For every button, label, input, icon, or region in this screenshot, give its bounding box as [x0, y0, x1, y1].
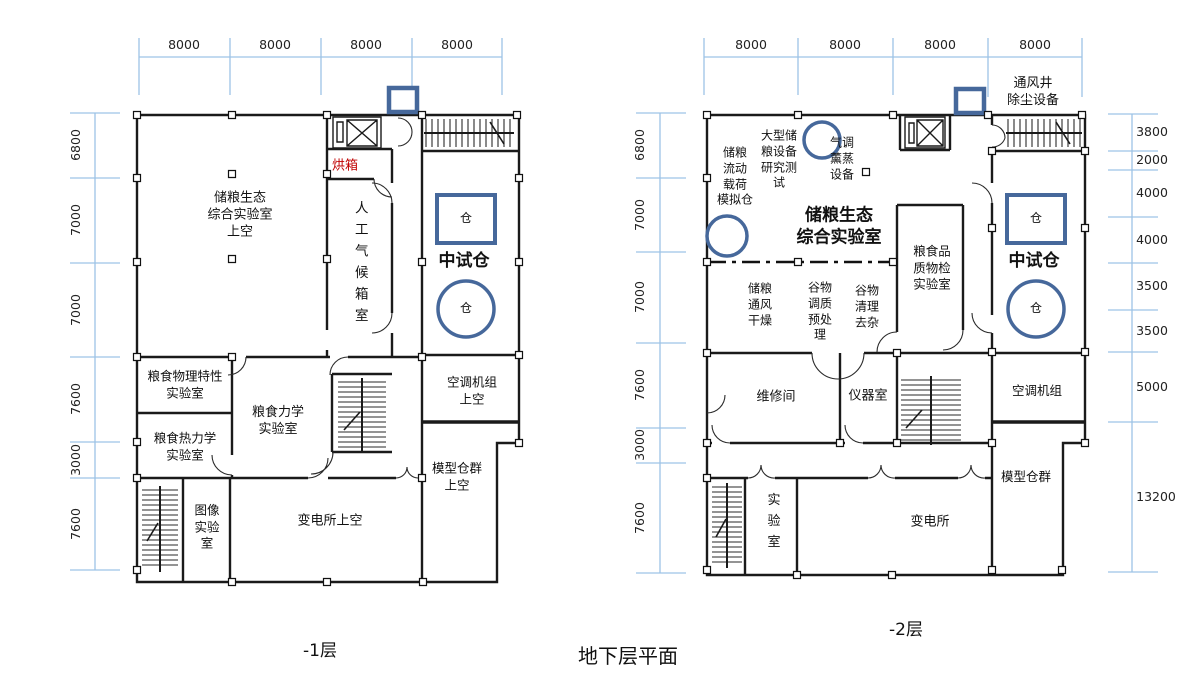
p2-top-dim-3: 8000 [1019, 37, 1051, 54]
p2-pilot-bin-label: 中试仓 [1009, 250, 1060, 272]
p1-room-eco-lab: 储粮生态 综合实验室 上空 [207, 189, 272, 240]
p2-room-quality-lab: 粮食品 质物检 实验室 [913, 243, 951, 293]
p1-left-dim-2: 7000 [68, 294, 85, 326]
p1-square-bin-label: 仓 [460, 211, 472, 227]
p2-round-bin-label: 仓 [1030, 301, 1042, 317]
p1-left-dim-4: 3000 [68, 444, 85, 476]
p2-room-drying: 储粮 通风 干燥 [748, 281, 772, 328]
p2-right-dim-4: 3500 [1136, 278, 1168, 295]
p1-room-substation: 变电所上空 [297, 512, 362, 529]
p2-room-lab: 实验室 [766, 493, 779, 556]
p1-top-dim-2: 8000 [350, 37, 382, 54]
p1-pilot-bin-label: 中试仓 [439, 250, 490, 272]
p2-top-dim-2: 8000 [924, 37, 956, 54]
p1-room-climate-chamber: 人工气候箱室 [352, 201, 366, 330]
p2-top-dim-0: 8000 [735, 37, 767, 54]
p2-left-dim-5: 7600 [632, 502, 649, 534]
p2-room-conditioning: 谷物 调质 预处 理 [808, 280, 832, 343]
basement-floor-plan-drawing: 8000 8000 8000 8000 6800 7000 7000 7600 … [0, 0, 1195, 682]
p1-top-dim-3: 8000 [441, 37, 473, 54]
p2-left-dim-4: 3000 [632, 429, 649, 461]
p1-left-dim-0: 6800 [68, 129, 85, 161]
p1-top-stairs-icon [424, 119, 514, 147]
p1-bottom-stairs-icon [142, 486, 178, 572]
p2-room-eco-lab: 储粮生态 综合实验室 [797, 205, 882, 250]
p1-elevator-icon [333, 117, 381, 148]
p1-left-dim-3: 7600 [68, 383, 85, 415]
p2-room-substation: 变电所 [910, 513, 949, 530]
p2-room-model-bins: 模型仓群 [1001, 469, 1051, 486]
p2-elevator-icon [905, 117, 945, 148]
p2-room-cleaning: 谷物 清理 去杂 [855, 283, 879, 330]
p2-room-repair: 维修间 [756, 388, 795, 405]
p2-right-dim-0: 3800 [1136, 124, 1168, 141]
p1-top-dim-1: 8000 [259, 37, 291, 54]
p1-floor-label: -1层 [303, 640, 337, 662]
p2-room-instrument: 仪器室 [848, 387, 887, 404]
drawing-title: 地下层平面 [578, 643, 678, 669]
p1-round-bin-label: 仓 [460, 301, 472, 317]
p2-top-dim-1: 8000 [829, 37, 861, 54]
p1-top-dim-0: 8000 [168, 37, 200, 54]
p1-oven-label: 烘箱 [332, 157, 358, 174]
p1-vent-shaft-square [389, 88, 417, 112]
p1-door-arcs [212, 118, 418, 478]
p2-right-dim-1: 2000 [1136, 152, 1168, 169]
p2-floor-label: -2层 [889, 619, 923, 641]
p1-left-dim-1: 7000 [68, 204, 85, 236]
p2-room-flow-load: 储粮 流动 载荷 模拟仓 [717, 145, 753, 208]
p2-right-dim-7: 13200 [1136, 489, 1176, 506]
p2-vent-shaft-square [956, 89, 984, 113]
p2-room-large-equipment: 大型储 粮设备 研究测 试 [761, 128, 797, 191]
p2-room-fumigation: 气调 薰蒸 设备 [830, 135, 854, 182]
p2-left-dim-2: 7000 [632, 281, 649, 313]
p2-left-dim-3: 7600 [632, 369, 649, 401]
p2-right-dim-2: 4000 [1136, 185, 1168, 202]
p2-top-stairs-icon [1006, 119, 1082, 147]
p1-room-grain-mechanics: 粮食力学 实验室 [252, 404, 304, 438]
p2-left-dim-0: 6800 [632, 129, 649, 161]
p2-simulation-bin-circle [707, 216, 747, 256]
p2-vent-shaft-label: 通风井 除尘设备 [1007, 75, 1059, 109]
p2-center-stairs-icon [901, 376, 961, 445]
p1-room-hvac: 空调机组 上空 [447, 375, 497, 408]
p2-right-dim-3: 4000 [1136, 232, 1168, 249]
p1-room-model-bins: 模型仓群 上空 [432, 461, 482, 494]
p2-left-dim-1: 7000 [632, 199, 649, 231]
p2-right-dim-5: 3500 [1136, 323, 1168, 340]
p1-left-dim-5: 7600 [68, 508, 85, 540]
p1-center-stairs-icon [338, 378, 386, 452]
p2-right-dim-6: 5000 [1136, 379, 1168, 396]
p2-room-hvac: 空调机组 [1012, 383, 1062, 400]
p1-room-image-lab: 图像 实验 室 [194, 502, 219, 552]
p2-bottom-stairs-icon [712, 483, 742, 568]
p1-room-grain-thermo: 粮食热力学 实验室 [154, 431, 217, 464]
p1-room-grain-physical: 粮食物理特性 实验室 [147, 369, 222, 402]
p2-square-bin-label: 仓 [1030, 211, 1042, 227]
